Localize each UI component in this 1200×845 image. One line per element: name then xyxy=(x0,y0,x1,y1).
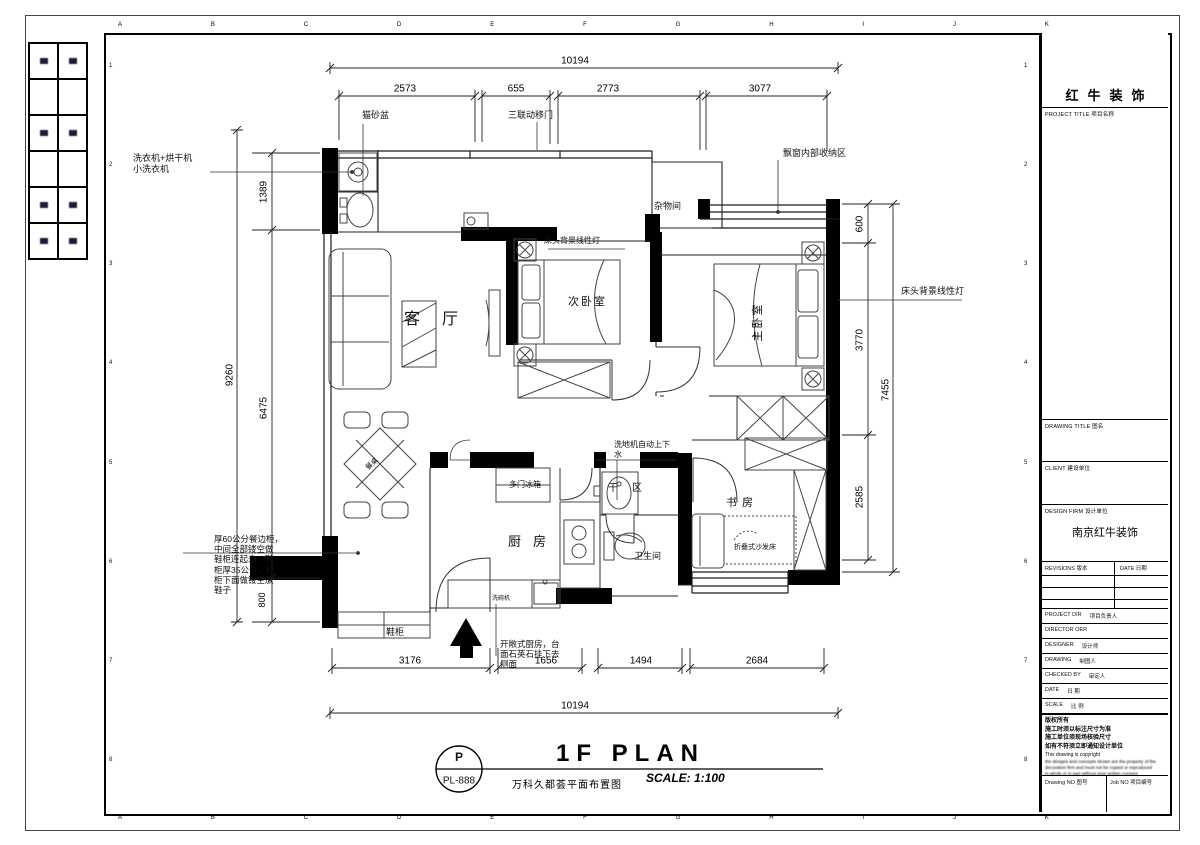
label-dry-area: 干区 xyxy=(608,483,656,495)
label-study: 书房 xyxy=(726,497,758,510)
note-line: 施工时须以标注尺寸为准 xyxy=(1045,726,1165,735)
dim-left-800: 800 xyxy=(257,592,267,607)
row-label-cn: 设计师 xyxy=(1082,642,1099,651)
client-section: CLIENT 建设单位 xyxy=(1042,462,1168,505)
dim-left-outer: 9260 xyxy=(225,364,236,386)
revision-row xyxy=(1042,588,1168,600)
project-title-label: PROJECT TITLE 项目名称 xyxy=(1042,108,1168,118)
label-bathroom: 卫生间 xyxy=(634,551,661,562)
drawing-number-section: Drawing NO 图号 Job NO 项目编号 xyxy=(1042,776,1168,812)
label-bay-window-storage: 飘窗内部收纳区 xyxy=(783,148,846,159)
label-shoe-cabinet: 鞋柜 xyxy=(386,627,404,638)
row-label-cn: 制图人 xyxy=(1079,657,1096,666)
drawing-sheet: ABCDEFGHIJK ABCDEFGHIJK 12345678 1234567… xyxy=(0,0,1200,845)
copyright-notes: 版权所有施工时须以标注尺寸为准施工单位须现场核验尺寸如有不符须立即通知设计单位T… xyxy=(1042,714,1168,776)
label-floor-washer: 洗地机自动上下 水 xyxy=(614,440,670,459)
design-firm-value: 南京红牛装饰 xyxy=(1042,524,1168,540)
project-title-section: PROJECT TITLE 项目名称 xyxy=(1042,108,1168,420)
label-living-room: 客厅 xyxy=(404,310,480,329)
dim-bottom-2: 1656 xyxy=(535,656,557,667)
label-bedhead-light-second: 床头背景线性灯 xyxy=(544,236,600,246)
row-label-en: DRAWING xyxy=(1045,657,1071,666)
client-label: CLIENT 建设单位 xyxy=(1042,462,1168,472)
dim-right-outer: 7455 xyxy=(881,379,892,401)
floor-plan-drawing xyxy=(0,0,1200,845)
row-label-cn: 项目负责人 xyxy=(1090,612,1118,621)
label-fridge: 多门冰箱 xyxy=(509,480,541,490)
note-line: This drawing is copyright xyxy=(1045,752,1165,759)
job-no-label: Job NO 项目编号 xyxy=(1107,776,1168,812)
title-block: 红牛装饰 PROJECT TITLE 项目名称 DRAWING TITLE 图名… xyxy=(1039,33,1168,812)
dim-left-1389: 1389 xyxy=(259,181,270,203)
revision-row xyxy=(1042,576,1168,588)
note-line: 如有不符须立即通知设计单位 xyxy=(1045,743,1165,752)
dim-top-1: 2573 xyxy=(394,84,416,95)
revisions-divider xyxy=(1114,562,1115,608)
label-second-bedroom: 次卧室 xyxy=(568,296,607,309)
row-label-en: SCALE xyxy=(1045,702,1063,711)
revisions-section: REVISIONS 版本 DATE 日期 xyxy=(1042,562,1168,609)
date-row: DATE 日 期 xyxy=(1042,684,1168,699)
checked-by-row: CHECKED BY 审定人 xyxy=(1042,669,1168,684)
label-storage-room: 杂物间 xyxy=(654,201,681,212)
dim-top-2: 655 xyxy=(508,84,525,95)
label-triple-sliding-door: 三联动移门 xyxy=(508,110,553,121)
label-washer-note: 洗衣机+烘干机 小洗衣机 xyxy=(133,153,192,175)
dim-right-600: 600 xyxy=(855,216,866,233)
row-label-cn: 比 例 xyxy=(1071,702,1084,711)
drawing-tag-number: PL-888 xyxy=(443,776,475,787)
scale-row: SCALE 比 例 xyxy=(1042,699,1168,714)
label-cat-litter: 猫砂盆 xyxy=(362,110,389,121)
company-name: 红牛装饰 xyxy=(1056,85,1153,104)
drawing-title-label: DRAWING TITLE 图名 xyxy=(1042,420,1168,430)
dim-top-4: 3077 xyxy=(749,84,771,95)
label-kitchen: 厨房 xyxy=(508,534,558,550)
project-dir-row: PROJECT DIR 项目负责人 xyxy=(1042,609,1168,624)
plan-scale: SCALE: 1:100 xyxy=(646,771,725,785)
dim-bottom-1: 3176 xyxy=(399,656,421,667)
dim-right-2585: 2585 xyxy=(855,486,866,508)
row-label-en: DATE xyxy=(1045,687,1059,696)
row-label-cn: 日 期 xyxy=(1067,687,1080,696)
label-folding-sofa-bed: 折叠式沙发床 xyxy=(734,544,776,552)
revisions-label: REVISIONS 版本 xyxy=(1042,562,1117,575)
row-label-en: DIRECTOR OER xyxy=(1045,627,1087,636)
design-firm-section: DESIGN FIRM 设计单位 南京红牛装饰 xyxy=(1042,505,1168,562)
entry-arrow xyxy=(450,618,482,658)
dim-top-3: 2773 xyxy=(597,84,619,95)
label-master-bedroom: 主卧室 xyxy=(749,303,765,342)
walls xyxy=(250,148,840,628)
drawing-no-label: Drawing NO 图号 xyxy=(1042,776,1107,812)
label-bedhead-light-master: 床头背景线性灯 xyxy=(901,286,964,297)
drawing-title-section: DRAWING TITLE 图名 xyxy=(1042,420,1168,462)
label-dishwasher: 洗碗机 xyxy=(492,596,510,603)
dim-top-total: 10194 xyxy=(561,56,589,67)
dim-bottom-total: 10194 xyxy=(561,701,589,712)
row-label-en: DESIGNER xyxy=(1045,642,1074,651)
row-label-cn: 审定人 xyxy=(1089,672,1106,681)
row-label-en: PROJECT DIR xyxy=(1045,612,1082,621)
title-block-logo-box: 红牛装饰 xyxy=(1042,33,1168,108)
dim-right-3770: 3770 xyxy=(855,329,866,351)
dim-bottom-3: 1494 xyxy=(630,656,652,667)
drawing-tag-letter: P xyxy=(455,750,463,764)
plan-subtitle: 万科久都荟平面布置图 xyxy=(512,776,622,791)
designer-row: DESIGNER 设计师 xyxy=(1042,639,1168,654)
design-firm-label: DESIGN FIRM 设计单位 xyxy=(1042,505,1168,515)
dim-bottom-4: 2684 xyxy=(746,656,768,667)
note-line: 施工单位须现场核验尺寸 xyxy=(1045,734,1165,743)
plan-title: 1F PLAN xyxy=(556,740,705,768)
furniture xyxy=(329,153,829,638)
row-label-en: CHECKED BY xyxy=(1045,672,1081,681)
director-row: DIRECTOR OER xyxy=(1042,624,1168,639)
dim-left-6475: 6475 xyxy=(259,397,270,419)
revisions-date-label: DATE 日期 xyxy=(1117,562,1150,575)
label-sideboard-note: 厚60公分餐边柜， 中间全部镂空做 鞋柜连起来，鞋 柜厚35公分，鞋 柜下面做镂… xyxy=(214,534,284,595)
note-line: 版权所有 xyxy=(1045,717,1165,726)
drawing-row: DRAWING 制图人 xyxy=(1042,654,1168,669)
